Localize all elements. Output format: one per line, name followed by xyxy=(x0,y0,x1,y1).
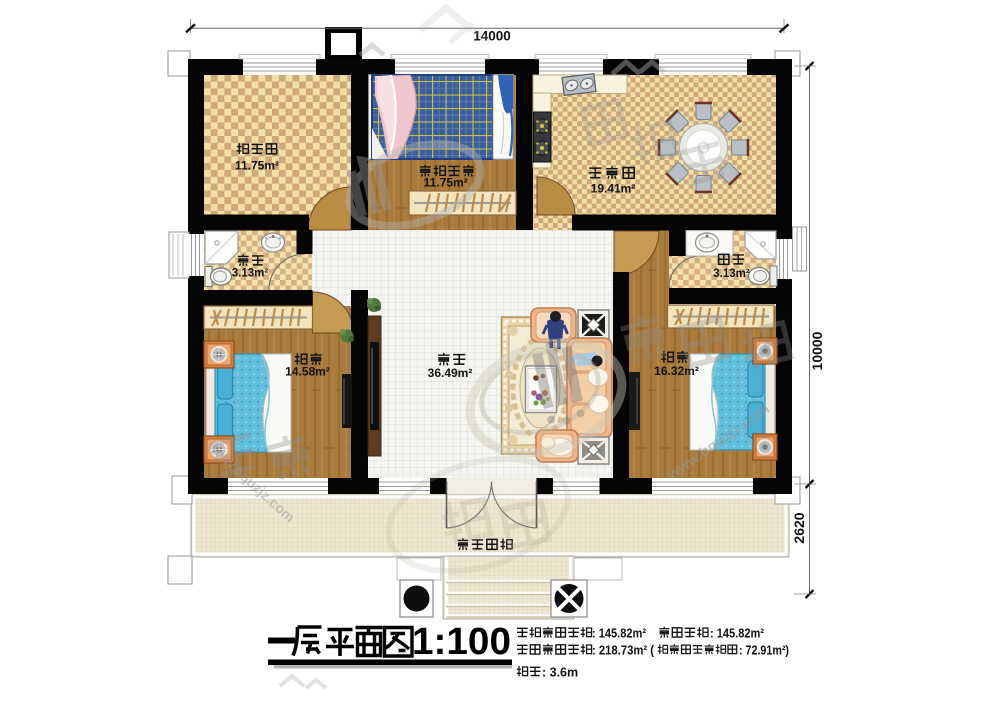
svg-text:3.13m²: 3.13m² xyxy=(713,268,750,280)
svg-text:19.41m²: 19.41m² xyxy=(591,182,636,196)
svg-text:2620: 2620 xyxy=(791,512,807,543)
svg-text:: 3.6m: : 3.6m xyxy=(542,666,578,680)
svg-text:3.13m²: 3.13m² xyxy=(232,268,269,280)
svg-text:: 145.82m²: : 145.82m² xyxy=(592,627,646,641)
svg-text:11.75m²: 11.75m² xyxy=(424,176,468,190)
svg-text:: 218.73m² (: : 218.73m² ( xyxy=(592,644,655,658)
svg-text:1:100: 1:100 xyxy=(412,621,511,663)
svg-text:: 145.82m²: : 145.82m² xyxy=(710,627,764,641)
svg-text:36.49m²: 36.49m² xyxy=(428,366,473,380)
svg-text:14.58m²: 14.58m² xyxy=(285,365,330,379)
svg-text:11.75m²: 11.75m² xyxy=(235,159,279,173)
svg-text:: 72.91m²): : 72.91m²) xyxy=(739,644,789,658)
svg-text:10000: 10000 xyxy=(809,331,825,370)
